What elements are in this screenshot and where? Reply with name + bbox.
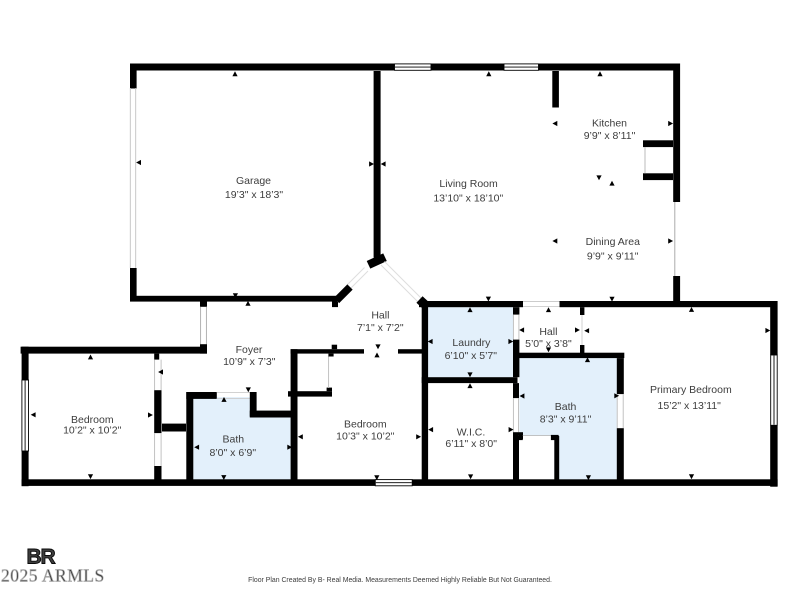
svg-text:8’3" x 9’11": 8’3" x 9’11" — [540, 414, 592, 426]
svg-text:9’9" x 9’11": 9’9" x 9’11" — [587, 250, 639, 262]
svg-text:W.I.C.: W.I.C. — [457, 426, 486, 438]
svg-text:2025 ARMLS: 2025 ARMLS — [1, 565, 105, 585]
svg-text:9’9" x 8’11": 9’9" x 8’11" — [584, 130, 636, 142]
svg-text:Foyer: Foyer — [236, 344, 263, 356]
svg-text:Bath: Bath — [222, 434, 244, 446]
svg-text:Floor Plan Created By B- Real: Floor Plan Created By B- Real Media. Mea… — [248, 577, 552, 584]
svg-text:10’3" x 10’2": 10’3" x 10’2" — [336, 430, 395, 442]
svg-text:Garage: Garage — [236, 175, 271, 187]
svg-text:15’2" x 13’11": 15’2" x 13’11" — [658, 400, 722, 412]
svg-text:Bath: Bath — [555, 401, 577, 413]
svg-text:6’10" x 5’7": 6’10" x 5’7" — [445, 350, 498, 362]
svg-text:Primary Bedroom: Primary Bedroom — [650, 384, 732, 396]
svg-text:Bedroom: Bedroom — [344, 419, 387, 431]
svg-text:Hall: Hall — [371, 309, 389, 321]
svg-text:Kitchen: Kitchen — [592, 118, 627, 130]
svg-text:8’0" x 6’9": 8’0" x 6’9" — [210, 447, 257, 459]
svg-text:19’3" x 18’3": 19’3" x 18’3" — [225, 189, 284, 201]
svg-text:Laundry: Laundry — [452, 337, 491, 349]
svg-text:Dining Area: Dining Area — [586, 236, 640, 248]
svg-text:13’10" x 18’10": 13’10" x 18’10" — [433, 192, 503, 204]
svg-text:Hall: Hall — [539, 326, 557, 338]
svg-text:6’11" x 8’0": 6’11" x 8’0" — [445, 438, 497, 450]
svg-text:10’9" x 7’3": 10’9" x 7’3" — [223, 356, 276, 368]
svg-text:Living Room: Living Room — [439, 178, 498, 190]
svg-text:7’1" x 7’2": 7’1" x 7’2" — [357, 322, 404, 334]
svg-text:10’2" x 10’2": 10’2" x 10’2" — [63, 425, 122, 437]
